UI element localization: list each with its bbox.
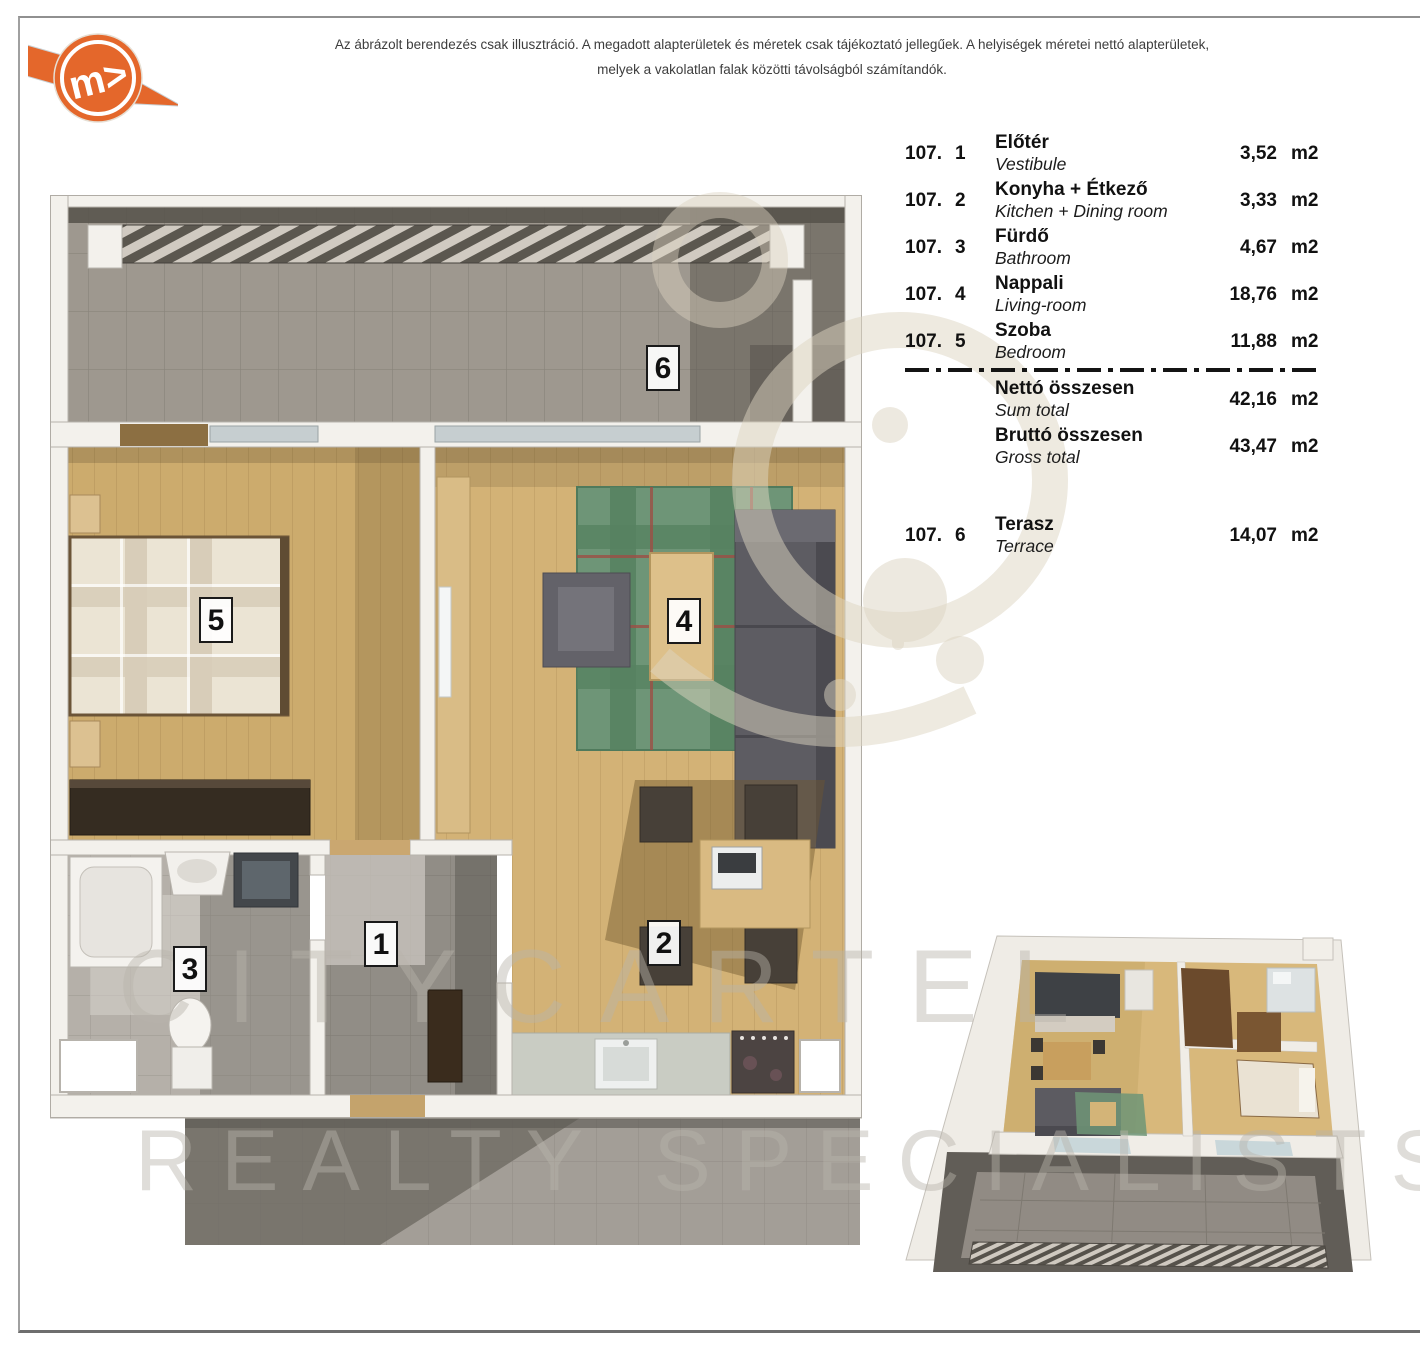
room-name-en: Vestibule xyxy=(995,154,1191,175)
watermark-text-brand: CITYCARTEL xyxy=(118,928,1103,1047)
total-name-en: Gross total xyxy=(995,447,1191,468)
total-name: Bruttó összesen Gross total xyxy=(995,425,1191,468)
total-area: 43,47 xyxy=(1191,436,1277,458)
room-area: 4,67 xyxy=(1191,237,1277,259)
room-area: 14,07 xyxy=(1191,525,1277,547)
room-number: 4 xyxy=(955,284,995,306)
room-name: Fürdő Bathroom xyxy=(995,226,1191,269)
room-label-living-room: 4 xyxy=(667,598,701,644)
room-name-en: Kitchen + Dining room xyxy=(995,201,1191,222)
room-name-hu: Fürdő xyxy=(995,226,1191,248)
area-unit: m2 xyxy=(1277,284,1323,306)
dresser xyxy=(70,780,310,835)
window xyxy=(60,1040,137,1092)
room-number: 3 xyxy=(955,237,995,259)
page: m> Az ábrázolt berendezés csak illusztrá… xyxy=(0,0,1420,1355)
window xyxy=(800,1040,840,1092)
legend-total-net: Nettó összesen Sum total 42,16 m2 xyxy=(905,376,1323,423)
area-unit: m2 xyxy=(1277,331,1323,353)
disclaimer-text: Az ábrázolt berendezés csak illusztráció… xyxy=(172,32,1372,82)
total-area: 42,16 xyxy=(1191,389,1277,411)
legend-table: 107. 1 Előtér Vestibule 3,52 m2 107. 2 K… xyxy=(905,130,1323,559)
room-number: 5 xyxy=(955,331,995,353)
room-label-bathroom: 3 xyxy=(173,946,207,992)
room-name-hu: Konyha + Étkező xyxy=(995,179,1191,201)
nightstand xyxy=(70,495,100,533)
room-name: Terasz Terrace xyxy=(995,514,1191,557)
legend-row: 107. 5 Szoba Bedroom 11,88 m2 xyxy=(905,318,1323,365)
room-name: Szoba Bedroom xyxy=(995,320,1191,363)
room-name: Előtér Vestibule xyxy=(995,132,1191,175)
total-name-hu: Nettó összesen xyxy=(995,378,1191,400)
room-area: 3,52 xyxy=(1191,143,1277,165)
room-name: Nappali Living-room xyxy=(995,273,1191,316)
room-area: 18,76 xyxy=(1191,284,1277,306)
watermark-text-tagline: REALTY SPECIALISTS xyxy=(135,1112,1420,1211)
room-name-en: Bathroom xyxy=(995,248,1191,269)
room-number: 1 xyxy=(955,143,995,165)
washing-machine xyxy=(234,853,298,907)
room-code: 107. xyxy=(905,284,955,306)
room-number: 2 xyxy=(955,190,995,212)
terrace-door-opening xyxy=(120,424,208,446)
area-unit: m2 xyxy=(1277,525,1323,547)
area-unit: m2 xyxy=(1277,237,1323,259)
room-label-kitchen: 2 xyxy=(647,920,681,966)
legend-divider xyxy=(905,368,1323,372)
legend-row: 107. 3 Fürdő Bathroom 4,67 m2 xyxy=(905,224,1323,271)
room-area: 11,88 xyxy=(1191,331,1277,353)
room-name-hu: Szoba xyxy=(995,320,1191,342)
room-name: Konyha + Étkező Kitchen + Dining room xyxy=(995,179,1191,222)
room-label-bedroom: 5 xyxy=(199,597,233,643)
area-unit: m2 xyxy=(1277,389,1323,411)
legend-row: 107. 1 Előtér Vestibule 3,52 m2 xyxy=(905,130,1323,177)
room-code: 107. xyxy=(905,525,955,547)
bedroom-door-opening xyxy=(330,840,410,855)
legend-total-gross: Bruttó összesen Gross total 43,47 m2 xyxy=(905,423,1323,470)
room-name-en: Bedroom xyxy=(995,342,1191,363)
nightstand xyxy=(70,721,100,767)
room-code: 107. xyxy=(905,190,955,212)
room-name-hu: Nappali xyxy=(995,273,1191,295)
area-unit: m2 xyxy=(1277,436,1323,458)
room-name-hu: Előtér xyxy=(995,132,1191,154)
room-name-en: Living-room xyxy=(995,295,1191,316)
total-name-hu: Bruttó összesen xyxy=(995,425,1191,447)
room-name-hu: Terasz xyxy=(995,514,1191,536)
bed xyxy=(70,537,289,715)
tv xyxy=(439,587,451,697)
room-code: 107. xyxy=(905,331,955,353)
room-code: 107. xyxy=(905,237,955,259)
room-number: 6 xyxy=(955,525,995,547)
sink xyxy=(165,852,230,895)
room-name-en: Terrace xyxy=(995,536,1191,557)
window xyxy=(210,426,318,442)
area-unit: m2 xyxy=(1277,190,1323,212)
room-code: 107. xyxy=(905,143,955,165)
legend-row-terrace: 107. 6 Terasz Terrace 14,07 m2 xyxy=(905,512,1323,559)
legend-row: 107. 2 Konyha + Étkező Kitchen + Dining … xyxy=(905,177,1323,224)
legend-row: 107. 4 Nappali Living-room 18,76 m2 xyxy=(905,271,1323,318)
total-name: Nettó összesen Sum total xyxy=(995,378,1191,421)
disclaimer-line-2: melyek a vakolatlan falak közötti távols… xyxy=(597,62,947,77)
room-label-vestibule: 1 xyxy=(364,921,398,967)
brand-logo: m> xyxy=(28,26,178,126)
room-area: 3,33 xyxy=(1191,190,1277,212)
room-label-terrace: 6 xyxy=(646,345,680,391)
total-name-en: Sum total xyxy=(995,400,1191,421)
disclaimer-line-1: Az ábrázolt berendezés csak illusztráció… xyxy=(335,37,1209,52)
area-unit: m2 xyxy=(1277,143,1323,165)
